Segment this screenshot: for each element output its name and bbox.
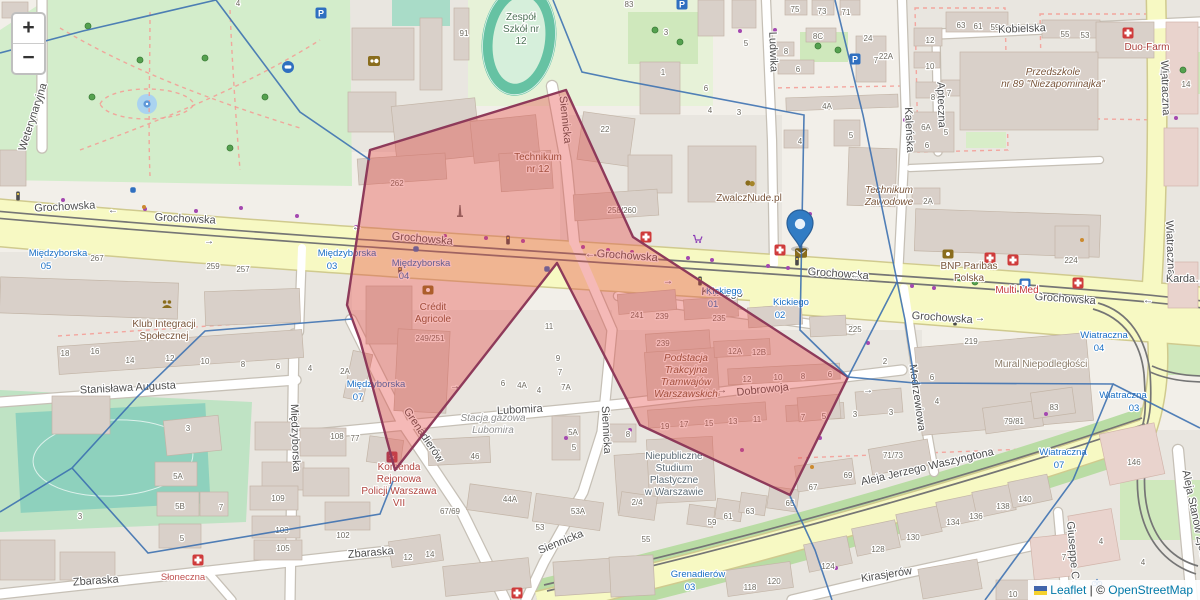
house-number: 3 <box>78 512 83 521</box>
car-share-icon <box>282 61 294 73</box>
house-number: 22A <box>879 52 894 61</box>
house-number: 8 <box>626 430 631 439</box>
cw1 <box>695 241 697 243</box>
transit-stop-name: Grenadierów <box>671 569 726 580</box>
house-number: 219 <box>964 337 978 346</box>
m2 <box>750 181 755 186</box>
house-number: 118 <box>744 583 757 592</box>
street-name: Wiatraczna <box>1163 220 1177 276</box>
transit-stop-name: 03 <box>327 261 338 272</box>
poi-name: Lubomira <box>472 425 514 436</box>
house-number: 140 <box>1018 495 1032 504</box>
oneway-arrow: → <box>863 385 873 396</box>
house-number: 14 <box>426 550 435 559</box>
transit-stop-name: Wiatraczna <box>1039 447 1087 458</box>
shop-dot-icon <box>1044 412 1048 416</box>
shop-dot-icon <box>295 214 299 218</box>
tree-icon <box>227 145 233 151</box>
dot <box>295 214 299 218</box>
building <box>1055 226 1089 258</box>
house-number: 267 <box>90 254 104 263</box>
house-number: 259 <box>206 262 220 271</box>
house-number: 6 <box>930 373 935 382</box>
house-number: 63 <box>957 21 966 30</box>
house-number: 61 <box>974 22 983 31</box>
house-number: 3 <box>664 28 669 37</box>
house-number: 4 <box>935 397 940 406</box>
street-name: Ludwika <box>766 32 779 74</box>
house-number: 10 <box>201 357 210 366</box>
light <box>796 258 798 260</box>
map-container[interactable]: PPP✶ 491833516437573718C8674A542422A2212… <box>0 0 1200 600</box>
dot <box>239 206 243 210</box>
house-number: 102 <box>336 531 350 540</box>
stop-sq <box>130 187 136 193</box>
footpath <box>149 12 150 176</box>
building <box>325 502 370 530</box>
house-number: 61 <box>724 512 733 521</box>
house-number: 63 <box>746 507 755 516</box>
house-number: 2A <box>923 197 933 206</box>
house-number: 53 <box>536 523 545 532</box>
poi-name: Plastyczne <box>650 475 699 486</box>
street-name: Apteczna <box>934 82 948 129</box>
shop-dot-icon <box>786 266 790 270</box>
house-number: 12 <box>404 553 413 562</box>
building <box>200 492 228 516</box>
house-number: 71 <box>842 8 851 17</box>
house-number: 6 <box>704 84 709 93</box>
house-number: 5 <box>572 443 577 452</box>
cross-h <box>194 559 201 562</box>
house-number: 18 <box>61 349 70 358</box>
house-number: 10 <box>926 62 935 71</box>
crown <box>652 27 658 33</box>
crown <box>85 23 91 29</box>
building <box>303 468 349 496</box>
building <box>1164 128 1198 186</box>
shop-dot-icon <box>766 264 770 268</box>
house-number: 44A <box>503 495 518 504</box>
cross-h <box>776 249 783 252</box>
poi-name: Zespół <box>506 12 537 23</box>
ukraine-flag-icon <box>1034 586 1047 595</box>
street-name: Kaleńska <box>902 107 916 154</box>
pharmacy-icon <box>1123 28 1134 39</box>
house-number: 53A <box>571 507 586 516</box>
dot <box>1174 116 1178 120</box>
house-number: 4 <box>708 106 713 115</box>
crown <box>1180 67 1186 73</box>
house-number: 4 <box>308 364 313 373</box>
transit-stop-name: Kickiego <box>773 297 809 308</box>
cross-h <box>513 592 520 595</box>
house-number: 7 <box>219 503 224 512</box>
tram-stop-icon <box>130 187 136 193</box>
house-number: 24 <box>864 34 873 43</box>
parking-icon: P <box>850 54 861 65</box>
car <box>285 65 292 68</box>
dot <box>1044 412 1048 416</box>
bus-stop-name: Słoneczna <box>161 572 206 583</box>
fountain-icon <box>143 100 150 107</box>
tree-icon <box>677 39 683 45</box>
green-patch <box>628 12 698 64</box>
house-number: 11 <box>545 322 554 331</box>
poi-name: w Warszawie <box>644 487 704 498</box>
house-number: 128 <box>871 545 885 554</box>
poi-name: BNP Paribas <box>940 261 997 272</box>
building <box>0 150 26 186</box>
house-number: 2/4 <box>631 498 643 507</box>
building <box>609 555 655 597</box>
house-number: 257 <box>236 265 250 274</box>
house-number: 14 <box>126 356 135 365</box>
house-number: 22 <box>601 125 610 134</box>
h2 <box>168 300 172 304</box>
osm-link[interactable]: OpenStreetMap <box>1108 583 1193 597</box>
poi-name: Szkół nr <box>503 24 540 35</box>
footpath <box>770 86 900 88</box>
house-number: 10 <box>1009 590 1018 599</box>
poi-name: Multi Med <box>995 285 1038 296</box>
oneway-arrow: → <box>975 313 985 324</box>
house-number: 5 <box>849 131 854 140</box>
shop-dot-icon <box>194 209 198 213</box>
pharmacy-icon <box>775 245 786 256</box>
zoom-out-button[interactable]: − <box>13 44 44 73</box>
oneway-arrow: ← <box>108 205 118 216</box>
building <box>348 92 396 132</box>
transit-stop-name: 04 <box>1094 343 1105 354</box>
dot <box>194 209 198 213</box>
house-number: 134 <box>946 518 960 527</box>
house-number: 4 <box>236 0 241 8</box>
shop-dot-icon <box>1174 116 1178 120</box>
crown <box>262 94 268 100</box>
dot <box>710 258 714 262</box>
building <box>1099 423 1165 486</box>
house-number: 8C <box>813 32 823 41</box>
pharmacy-icon <box>193 555 204 566</box>
house-number: 2A <box>340 367 350 376</box>
dot <box>766 264 770 268</box>
house-number: 79/81 <box>1004 417 1025 426</box>
tree-icon <box>815 43 821 49</box>
p-letter: P <box>318 8 324 18</box>
house-number: 59 <box>708 518 717 527</box>
building <box>960 52 1098 130</box>
house-number: 91 <box>460 29 469 38</box>
house-number: 3 <box>889 408 894 417</box>
house-number: 6A <box>921 123 931 132</box>
d1 <box>370 59 373 62</box>
street-name: Karda… <box>1166 273 1200 285</box>
tree-icon <box>202 55 208 61</box>
building <box>420 18 442 90</box>
dot <box>786 266 790 270</box>
house-number: 5 <box>180 534 185 543</box>
house-number: 8 <box>784 47 789 56</box>
dot <box>686 256 690 260</box>
tree-icon <box>652 27 658 33</box>
oneway-arrow: ← <box>1143 295 1153 306</box>
house-number: 2 <box>883 357 888 366</box>
tree-icon <box>89 94 95 100</box>
poi-name: Klub Integracji <box>132 319 195 330</box>
zoom-control: + − <box>11 12 46 75</box>
dot <box>932 286 936 290</box>
crown <box>815 43 821 49</box>
house-number: 4 <box>1099 537 1104 546</box>
house-number: 5 <box>944 128 949 137</box>
poi-name: Technikum <box>865 185 913 196</box>
house-number: 75 <box>791 5 800 14</box>
house-number: 5 <box>744 39 749 48</box>
street-name: Międzyborska <box>288 404 302 473</box>
pole <box>16 192 20 201</box>
transit-stop-name: 07 <box>1054 460 1065 471</box>
shop-dot-icon <box>738 29 742 33</box>
tree-icon <box>85 23 91 29</box>
transit-stop-name: Wiatraczna <box>1080 330 1128 341</box>
building <box>352 28 414 80</box>
poi-name: ZwalczNude.pl <box>716 193 782 204</box>
green-patch <box>966 132 1006 148</box>
jet <box>146 103 148 105</box>
building <box>1042 20 1100 38</box>
tree-icon <box>835 47 841 53</box>
d2 <box>374 59 378 63</box>
house-number: 55 <box>1061 30 1070 39</box>
building <box>163 415 221 456</box>
craft-dot-icon <box>142 205 146 209</box>
parking-icon: P <box>316 8 327 19</box>
poi-name: Studium <box>656 463 693 474</box>
poi-name: Polska <box>954 273 984 284</box>
house-number: 5A <box>568 428 578 437</box>
attribution-bar: Leaflet | © OpenStreetMap <box>1028 580 1200 600</box>
house-number: 120 <box>767 577 781 586</box>
cross-h <box>642 236 649 239</box>
map-canvas[interactable]: PPP✶ 491833516437573718C8674A542422A2212… <box>0 0 1200 600</box>
poi-name: Stacja gazowa <box>460 413 525 424</box>
house-number: 4 <box>537 386 542 395</box>
street-name: Kobielska <box>998 22 1047 36</box>
house-number: 4A <box>822 102 832 111</box>
pharmacy-icon <box>1073 278 1084 289</box>
cw2 <box>699 241 701 243</box>
shop-dot-icon <box>239 206 243 210</box>
shop-dot-icon <box>910 284 914 288</box>
crown <box>227 145 233 151</box>
crown <box>202 55 208 61</box>
house-number: 4 <box>798 137 803 146</box>
traffic-light-icon <box>795 257 799 266</box>
building <box>698 0 724 36</box>
house-number: 73 <box>818 7 827 16</box>
map-marker[interactable] <box>787 210 813 252</box>
light <box>17 193 19 195</box>
building <box>0 540 55 580</box>
craft-dot-icon <box>810 465 814 469</box>
dot <box>910 284 914 288</box>
leaflet-link[interactable]: Leaflet <box>1050 583 1086 597</box>
house-number: 6 <box>501 379 506 388</box>
house-number: 5B <box>175 502 185 511</box>
dot <box>142 205 146 209</box>
house-number: 83 <box>1050 403 1059 412</box>
house-number: 67/69 <box>440 507 461 516</box>
house-number: 77 <box>351 434 360 443</box>
house-number: 136 <box>969 512 983 521</box>
transit-stop-name: 05 <box>41 261 52 272</box>
cross-h <box>1074 282 1081 285</box>
oneway-arrow: → <box>204 236 214 247</box>
transit-stop-name: 03 <box>685 582 696 593</box>
house-number: 69 <box>844 471 853 480</box>
house-number: 109 <box>271 494 285 503</box>
house-number: 6 <box>925 141 930 150</box>
house-number: 14 <box>1182 80 1191 89</box>
tree-icon <box>262 94 268 100</box>
p-letter: P <box>679 0 685 9</box>
building <box>834 120 860 146</box>
oneway-arrow: ← <box>850 270 860 281</box>
dot <box>810 465 814 469</box>
house-number: 53 <box>1081 31 1090 40</box>
transit-stop-name: 07 <box>353 392 364 403</box>
poi-name: Przedszkole <box>1026 67 1081 78</box>
traffic-light-icon <box>16 192 20 201</box>
shop-dot-icon <box>686 256 690 260</box>
oneway-arrow: ↓ <box>1159 67 1164 78</box>
house-number: 3 <box>737 108 742 117</box>
house-number: 4A <box>517 381 527 390</box>
transit-stop-name: 02 <box>775 310 786 321</box>
poi-name: Zawodowe <box>864 197 914 208</box>
building <box>786 94 898 111</box>
crown <box>835 47 841 53</box>
coin <box>946 252 950 256</box>
building <box>0 277 179 319</box>
house-number: 12 <box>926 36 935 45</box>
house-number: 6 <box>276 362 281 371</box>
house-number: 1 <box>661 68 666 77</box>
house-number: 138 <box>996 502 1010 511</box>
poi-name: VII <box>393 498 405 509</box>
poi-name: Policji Warszawa <box>361 486 437 497</box>
house-number: 130 <box>906 533 920 542</box>
cross-h <box>1009 259 1016 262</box>
dot <box>1080 238 1084 242</box>
clinic-icon <box>1008 255 1019 266</box>
house-number: 6 <box>796 65 801 74</box>
house-number: 224 <box>1064 256 1078 265</box>
house-number: 3 <box>186 424 191 433</box>
house-number: 4 <box>1141 558 1146 567</box>
house-number: 83 <box>625 0 634 9</box>
h1 <box>163 300 167 304</box>
house-number: 5A <box>173 472 183 481</box>
cross-h <box>986 257 993 260</box>
poi-name: 12 <box>515 36 527 47</box>
house-number: 225 <box>848 325 862 334</box>
poi-name: Społecznej <box>140 331 189 342</box>
craft-dot-icon <box>1080 238 1084 242</box>
house-number: 146 <box>1127 458 1141 467</box>
house-number: 3 <box>853 410 858 419</box>
crown <box>137 57 143 63</box>
house-number: 108 <box>330 432 344 441</box>
attribution-separator: | © <box>1086 583 1108 597</box>
pole <box>795 257 799 266</box>
building <box>810 315 847 337</box>
pharmacy-icon <box>641 232 652 243</box>
pharmacy-icon <box>512 588 523 599</box>
museum-icon <box>368 56 380 66</box>
tree-icon <box>137 57 143 63</box>
shop-dot-icon <box>932 286 936 290</box>
building <box>204 288 300 325</box>
tree-icon <box>1180 67 1186 73</box>
zoom-in-button[interactable]: + <box>13 14 44 43</box>
poi-name: Duo-Farm <box>1124 42 1169 53</box>
house-number: 46 <box>471 452 480 461</box>
street-name: Siennicka <box>599 406 614 455</box>
parking-icon: P <box>677 0 688 10</box>
p-letter: P <box>852 54 858 64</box>
bank-icon <box>943 250 954 259</box>
house-number: 7 <box>1062 553 1067 562</box>
building <box>553 558 615 596</box>
building <box>52 396 110 434</box>
house-number: 105 <box>276 544 290 553</box>
house-number: 124 <box>821 562 835 571</box>
house-number: 8 <box>241 360 246 369</box>
poi-name: Rejonowa <box>377 474 422 485</box>
shop-dot-icon <box>710 258 714 262</box>
crown <box>677 39 683 45</box>
house-number: 55 <box>642 535 651 544</box>
building <box>732 0 756 28</box>
dot <box>738 29 742 33</box>
house-number: 9 <box>556 354 561 363</box>
building <box>628 155 672 193</box>
poi-name: nr 89 "Niezapominajka" <box>1001 79 1105 90</box>
house-number: 7A <box>561 383 571 392</box>
house-number: 7 <box>558 368 563 377</box>
transit-stop-name: 03 <box>1129 403 1140 414</box>
house-number: 16 <box>91 347 100 356</box>
poi-name: Mural Niepodległości <box>995 359 1088 370</box>
transit-stop-name: Międzyborska <box>29 248 88 259</box>
house-number: 67 <box>809 483 818 492</box>
cross-h <box>1124 32 1131 35</box>
crown <box>89 94 95 100</box>
poi-name: Niepubliczne <box>645 451 703 462</box>
house-number: 71/73 <box>883 451 904 460</box>
